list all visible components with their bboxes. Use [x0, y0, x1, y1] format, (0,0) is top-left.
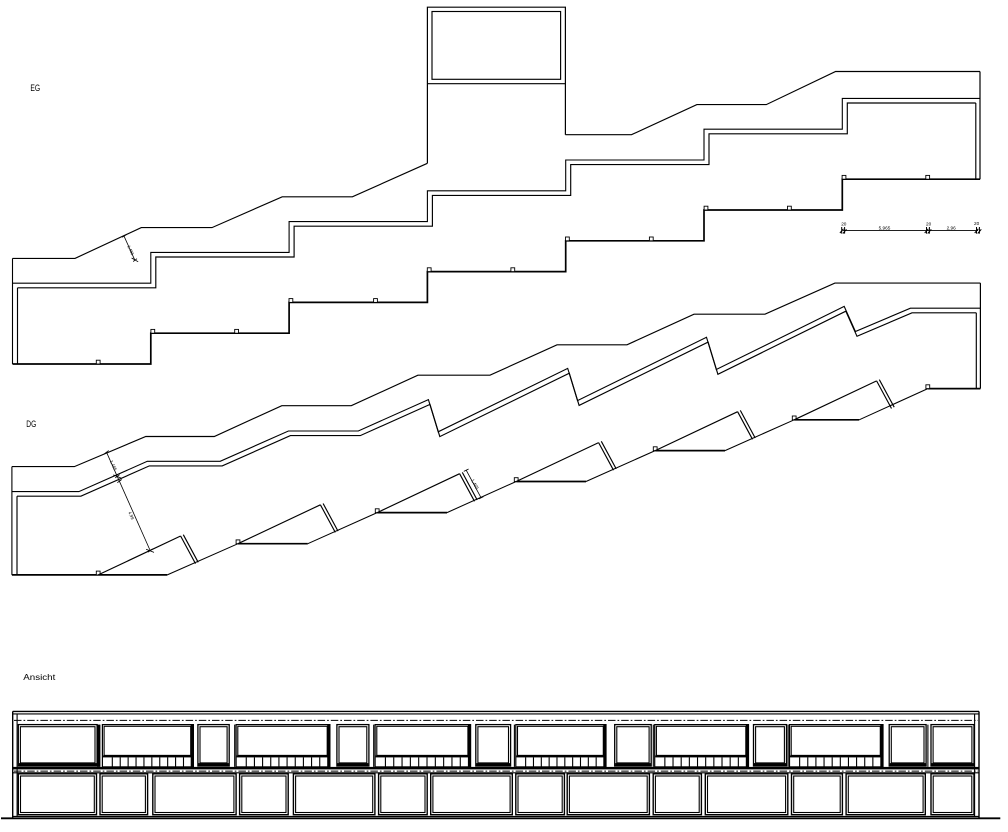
- svg-text:20: 20: [926, 221, 932, 226]
- svg-text:EG: EG: [30, 83, 40, 93]
- svg-text:20: 20: [841, 221, 847, 226]
- svg-text:20: 20: [974, 221, 980, 226]
- svg-text:DG: DG: [26, 419, 36, 429]
- svg-text:Ansicht: Ansicht: [23, 673, 56, 682]
- svg-text:5,965: 5,965: [879, 226, 891, 231]
- svg-text:2,96: 2,96: [947, 226, 957, 231]
